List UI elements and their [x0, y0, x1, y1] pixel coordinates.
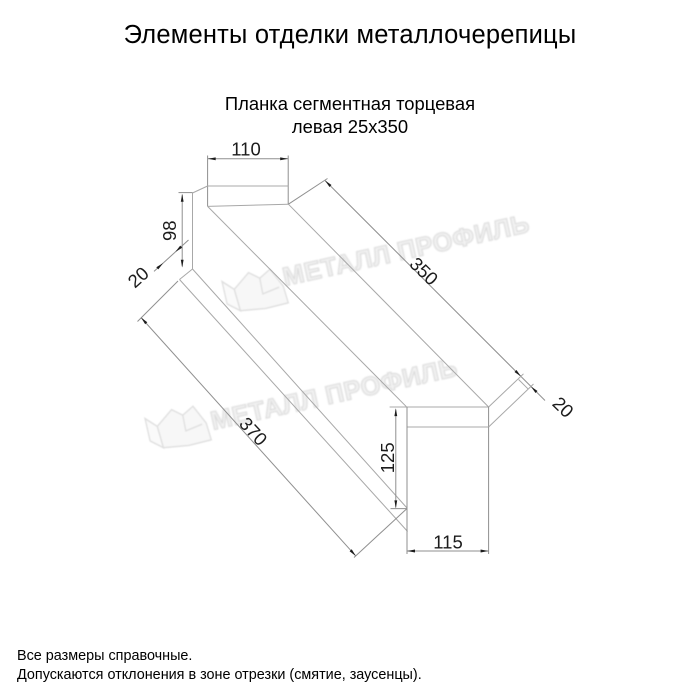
- svg-text:20: 20: [123, 262, 152, 291]
- svg-text:98: 98: [159, 220, 180, 241]
- svg-text:125: 125: [377, 442, 398, 473]
- svg-text:115: 115: [433, 532, 463, 553]
- svg-text:МЕТАЛЛ ПРОФИЛЬ: МЕТАЛЛ ПРОФИЛЬ: [280, 210, 532, 292]
- svg-text:20: 20: [548, 392, 577, 421]
- svg-text:110: 110: [231, 138, 261, 159]
